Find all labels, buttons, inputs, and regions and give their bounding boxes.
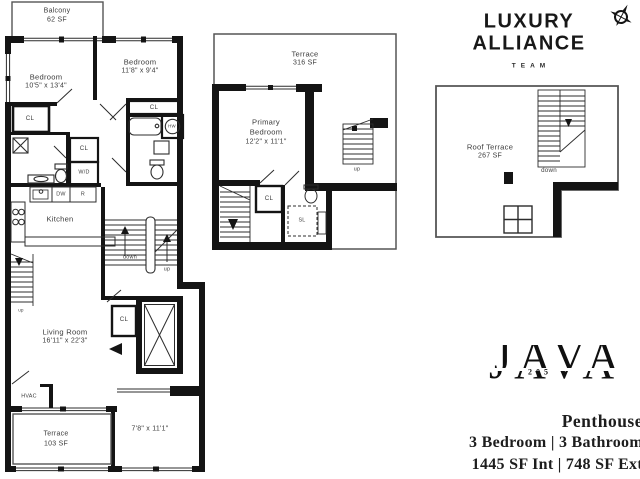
stairs-roof-icon xyxy=(538,90,585,167)
bathroom-left xyxy=(13,138,67,183)
shower-label: SL xyxy=(298,218,305,225)
spec-bed-bath: 3 Bedroom | 3 Bathroom xyxy=(469,434,640,452)
bedroom-left-dims: 10'5" x 13'4" xyxy=(25,83,67,92)
roof-terrace-area: 267 SF xyxy=(478,153,502,162)
dishwasher-label: DW xyxy=(56,192,65,199)
stairs-up2-icon xyxy=(343,119,373,164)
closet-label: CL xyxy=(80,145,88,153)
bedroom-left-label: Bedroom xyxy=(30,72,63,81)
floor2-walls xyxy=(212,84,397,250)
kitchen-sink-icon xyxy=(33,190,48,199)
building-logo: JAVA JAVA xyxy=(494,345,640,407)
stairs-main-icon xyxy=(105,217,177,273)
unit-type: Penthouse xyxy=(562,411,640,432)
flex-dims: 7'8" x 11'1" xyxy=(132,426,169,435)
stairs-up-label: up xyxy=(164,267,171,274)
closet-label: CL xyxy=(120,316,128,324)
stairs-up-label: up xyxy=(18,307,23,313)
chimney xyxy=(504,172,513,184)
primary-bedroom-label2: Bedroom xyxy=(250,127,283,136)
floorplan-sheet: Balcony 62 SF Bedroom 10'5" x 13'4" Bedr… xyxy=(0,0,640,479)
stairs-down-label: down xyxy=(541,167,557,175)
toilet-icon xyxy=(150,160,164,165)
stairs-down-label: down xyxy=(123,255,137,262)
terrace-area: 103 SF xyxy=(44,441,68,450)
roof-outline xyxy=(436,86,618,237)
primary-bedroom-label1: Primary xyxy=(252,117,280,126)
compass-icon xyxy=(606,0,638,31)
stairs-down2-icon xyxy=(220,186,250,242)
floorplan-drawing xyxy=(0,0,640,479)
balcony-area: 62 SF xyxy=(47,17,67,26)
roof-terrace-label: Roof Terrace xyxy=(467,142,513,151)
entry-arrow xyxy=(109,343,122,355)
stairs-up-label: up xyxy=(354,167,361,174)
building-logo-top: JAVA xyxy=(494,345,640,368)
bedroom-right-label: Bedroom xyxy=(124,57,157,66)
down-arrow xyxy=(228,219,238,230)
hvac-label: HVAC xyxy=(21,394,37,401)
brand-line2: ALLIANCE xyxy=(472,33,585,56)
kitchen-label: Kitchen xyxy=(46,214,73,223)
tub-icon xyxy=(129,118,161,135)
hvac-closet xyxy=(40,384,53,408)
brand-subtitle: TEAM xyxy=(512,63,550,70)
bedroom-right-dims: 11'8" x 9'4" xyxy=(122,68,159,77)
closet-label: CL xyxy=(265,195,273,203)
stairs-small-icon xyxy=(11,254,33,306)
closet-label: CL xyxy=(150,104,158,112)
terrace2-area: 316 SF xyxy=(293,60,317,69)
living-room-dims: 16'11" x 22'3" xyxy=(42,338,87,347)
building-number: 205 xyxy=(528,368,552,377)
sink-icon xyxy=(154,141,169,154)
primary-bedroom-dims: 12'2" x 11'1" xyxy=(245,139,286,148)
toilet-icon xyxy=(55,164,67,169)
floor2-windows xyxy=(246,85,296,90)
refrigerator-label: R xyxy=(81,192,85,199)
elevator-icon xyxy=(136,296,183,374)
terrace2-label: Terrace xyxy=(291,49,318,58)
washer-dryer-label: W/D xyxy=(78,170,89,177)
living-room-label: Living Room xyxy=(43,327,88,336)
brand-line1: LUXURY xyxy=(484,11,574,34)
closet-label: CL xyxy=(26,115,34,123)
building-logo-bottom: JAVA xyxy=(489,371,640,398)
spec-sf: 1445 SF Int | 748 SF Ext xyxy=(472,456,640,474)
hot-water-label: HW xyxy=(168,123,176,129)
balcony-label: Balcony xyxy=(44,8,71,17)
roof-plan xyxy=(436,86,618,237)
bathroom2 xyxy=(260,170,326,236)
skylight-icon xyxy=(504,206,532,233)
terrace-label: Terrace xyxy=(43,431,68,440)
floor1-terrace-windows xyxy=(22,389,170,412)
